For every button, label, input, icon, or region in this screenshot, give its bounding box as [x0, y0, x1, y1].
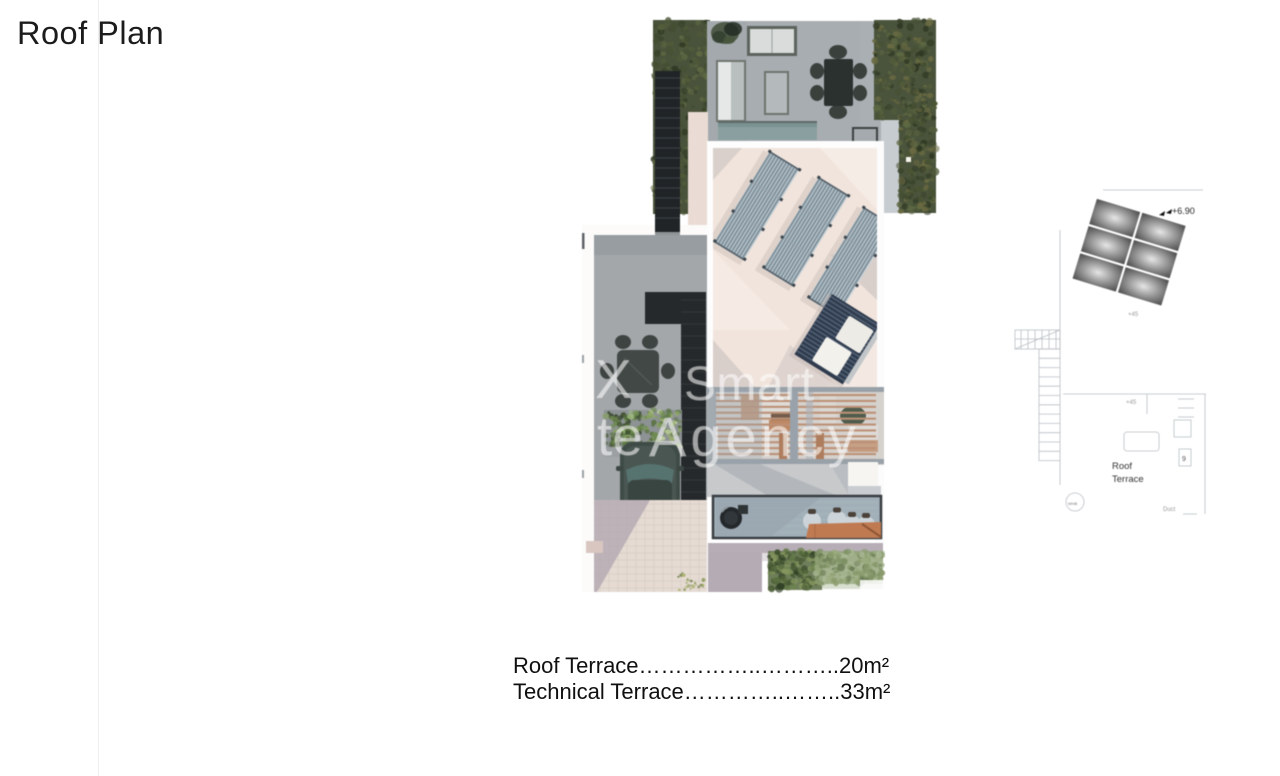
- svg-text:Duct: Duct: [1163, 507, 1176, 513]
- svg-text:+45: +45: [1126, 400, 1137, 406]
- svg-text:9: 9: [1182, 456, 1186, 463]
- svg-text:X: X: [595, 348, 632, 410]
- svg-text:Agency: Agency: [649, 405, 860, 468]
- svg-text:WHB: WHB: [1068, 501, 1078, 506]
- svg-text:Terrace: Terrace: [1112, 474, 1144, 485]
- svg-text:Smart: Smart: [684, 358, 815, 411]
- svg-text:+6.90: +6.90: [1172, 206, 1195, 216]
- svg-text:te: te: [597, 405, 643, 467]
- svg-text:+45: +45: [1128, 312, 1139, 318]
- svg-text:Roof: Roof: [1112, 461, 1132, 472]
